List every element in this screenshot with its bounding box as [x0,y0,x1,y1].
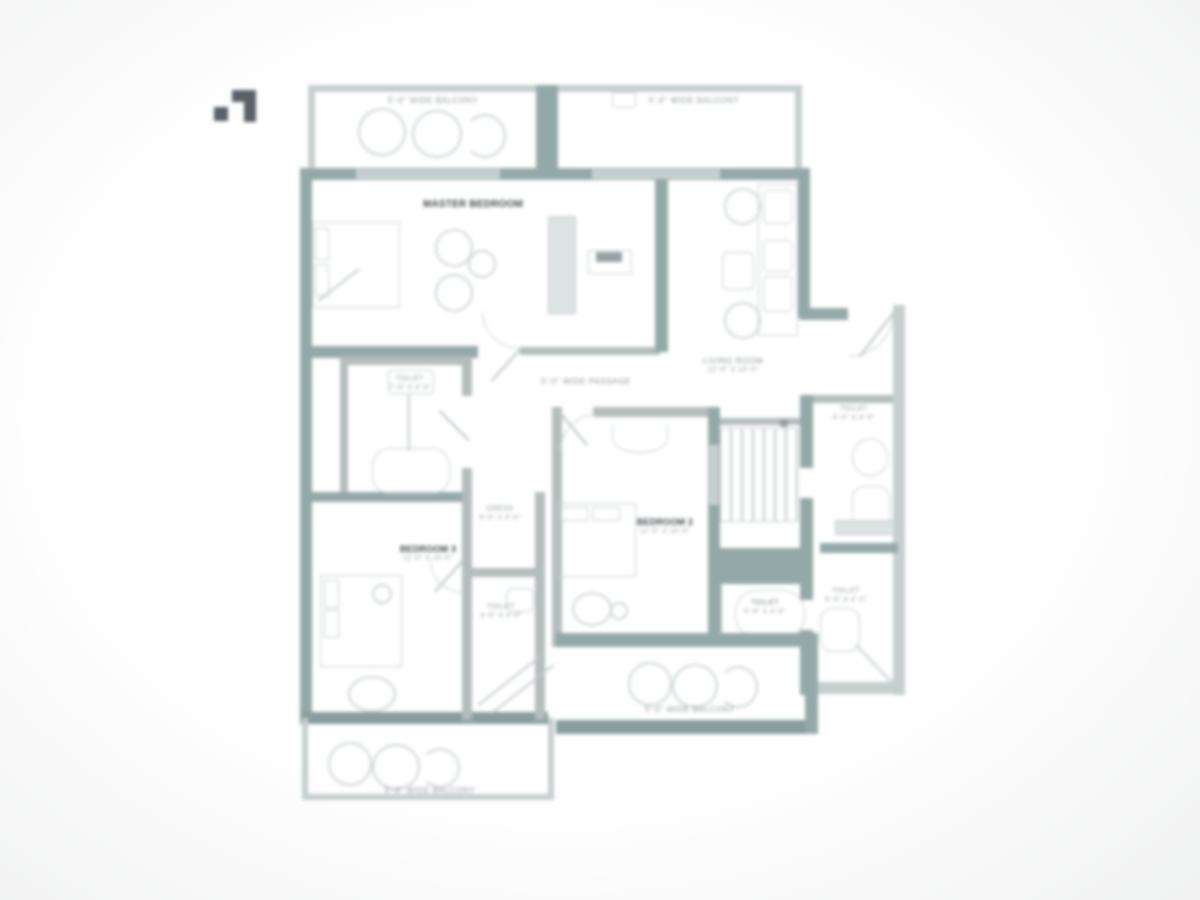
toilet-entry-label: TOILET 6'-6" X 4'-0" [833,405,875,423]
bedroom2-north-wall [593,407,715,417]
foyer-outer-wall [893,305,905,695]
living-room-name: LIVING ROOM [703,357,763,366]
bed-pillow [315,228,329,260]
door-opening [800,468,813,498]
balcony-br-east-wall [805,633,818,734]
bathtub [372,448,450,494]
column-east-wall [535,492,545,720]
bed-pillow [592,507,620,521]
window-top [356,169,500,179]
foyer-shelf [835,520,895,535]
floor-plan: 5'-0" WIDE BALCONY 5'-0" WIDE BALCONY MA… [0,0,1200,900]
planter-icon [612,92,636,108]
toilet-main-door-leaf [439,410,470,441]
living-room-label: LIVING ROOM 12'-6" X 10'-0" [703,357,763,376]
living-room-dim: 12'-6" X 10'-0" [703,367,763,376]
bedroom2-window [709,445,719,505]
balcony-tr-label: 5'-0" WIDE BALCONY [649,96,739,106]
toilet-right-label: TOILET 5'-6" X 4'-0" [825,587,867,605]
foyer-bottom-wall [813,682,905,694]
floor-plan-page: 5'-0" WIDE BALCONY 5'-0" WIDE BALCONY MA… [0,0,1200,900]
master-door-arc [482,312,521,349]
balcony-seat-circle [358,108,406,156]
toilet-divider-wall [820,543,898,553]
balcony-bl-label: 5'-0" WIDE BALCONY [385,786,475,796]
column-west-wall [462,492,472,720]
table-circle [610,602,628,620]
balcony-seat-circle [464,114,506,158]
lamp-circle [372,584,392,604]
bedroom2-label: BEDROOM 2 11'-0" X 10'-0" [637,517,693,537]
balcony-tr-wall [558,85,802,92]
balcony-br-label: 5'-0" WIDE BALCONY [645,705,735,715]
balcony-seat-circle [412,110,462,158]
wardrobe [548,216,576,314]
stairs-arrow-icon [780,419,788,427]
bed-pillow [560,507,588,521]
side-table-circle [468,250,496,278]
balcony-seat-circle [628,662,672,706]
balcony-seat-circle [718,666,758,708]
balcony-bl-wall [302,718,308,800]
dress-label: DRESS 5'-0" X 4'-0" [479,505,521,523]
entry-stub-wall [800,308,848,320]
master-bedroom-label: MASTER BEDROOM [423,199,523,212]
window-top [592,169,720,179]
outer-wall-bottom-left [300,712,548,724]
toilet-entry-north-wall [813,395,893,403]
bed-pillow [324,580,339,608]
balcony-divider-wall [536,85,558,170]
basin-stand-line [408,395,410,451]
toilet-main-wall [340,356,348,492]
kitchen-island-module [722,252,754,290]
balcony-tl-wall [308,85,315,168]
toilet-main-wall [462,356,472,396]
balcony-seat-circle [372,744,420,790]
right-toilet-wc [820,608,860,652]
armchair-circle [435,274,473,312]
toilet-main-label: TOILET 7'-0" X 4'-6" [389,375,431,393]
wall-niche [612,424,668,453]
kitchen-stool-circle [724,188,761,225]
balcony-seat-circle [328,742,372,786]
toilet-main-wall [345,356,472,365]
balcony-seat-circle [672,664,718,708]
staircase [718,428,798,522]
toilet-stairs-label: TOILET 5'-0" X 4'-0" [744,599,786,617]
balcony-br-north-wall [556,633,818,647]
kitchen-counter-module [763,276,793,312]
small-toilet-sink [506,588,534,612]
passage-label: 5'-0" WIDE PASSAGE [541,377,631,387]
outer-wall-left [300,168,312,724]
balcony-br-south-wall [556,720,818,734]
chair-circle [572,592,612,626]
entry-door-arc [848,314,893,357]
balcony-seat-circle [420,748,460,788]
duct-wall-block [712,548,808,584]
column-divider-wall [472,568,542,577]
bedroom2-east-wall [708,407,720,647]
bed-pillow [324,610,339,638]
tv-icon [596,252,622,262]
outer-wall-right-upper [798,168,810,318]
chair-circle [348,676,396,712]
balcony-bl-wall [548,718,554,800]
toilet-main-wall [462,468,472,494]
master-kitchen-divider-wall [655,180,668,352]
master-south-wall [520,347,660,355]
master-door-leaf [491,348,522,382]
balcony-tr-wall [795,85,802,168]
kitchen-stool-circle [724,302,761,339]
balcony-tl-wall [308,85,536,92]
brand-logo-icon [208,84,260,130]
balcony-tl-label: 5'-0" WIDE BALCONY [388,96,478,106]
kitchen-sink [763,190,793,224]
kitchen-hob [763,240,793,272]
foyer-sink [852,438,888,476]
